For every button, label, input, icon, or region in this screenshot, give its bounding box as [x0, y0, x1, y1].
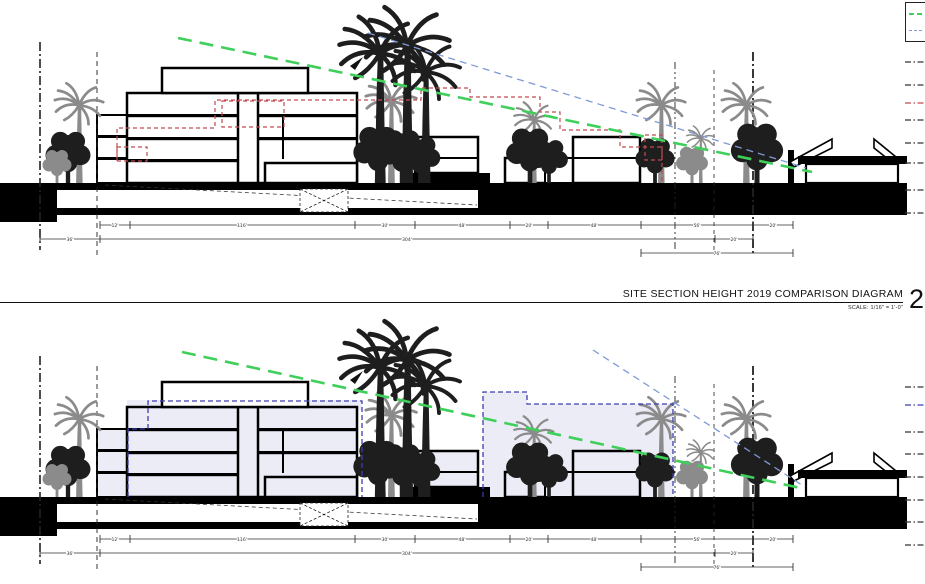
blue-dashed-line-sample: [909, 30, 922, 31]
legend-item-blue: P: [909, 25, 925, 37]
level-ticks-right: [905, 387, 925, 545]
bird-silhouette: [350, 57, 363, 70]
scale-label: SCALE: 1/16" = 1'-0": [848, 305, 903, 311]
legend-item-green: P: [909, 8, 925, 20]
site-section-top: [0, 0, 925, 270]
green-dashed-line-sample: [909, 13, 922, 15]
drawing-sheet: 12' 116' 30' 48' 20' 48' 56' 20' 36' 304…: [0, 0, 925, 584]
site-section-bottom: [0, 314, 925, 584]
bird-silhouette: [350, 371, 363, 384]
drawing-title: SITE SECTION HEIGHT 2019 COMPARISON DIAG…: [623, 288, 903, 300]
sheet-number: 2: [909, 284, 924, 315]
level-ticks-right: [905, 62, 925, 213]
title-block: SITE SECTION HEIGHT 2019 COMPARISON DIAG…: [0, 286, 925, 320]
title-rule: [0, 302, 903, 303]
legend: P P: [905, 2, 925, 42]
